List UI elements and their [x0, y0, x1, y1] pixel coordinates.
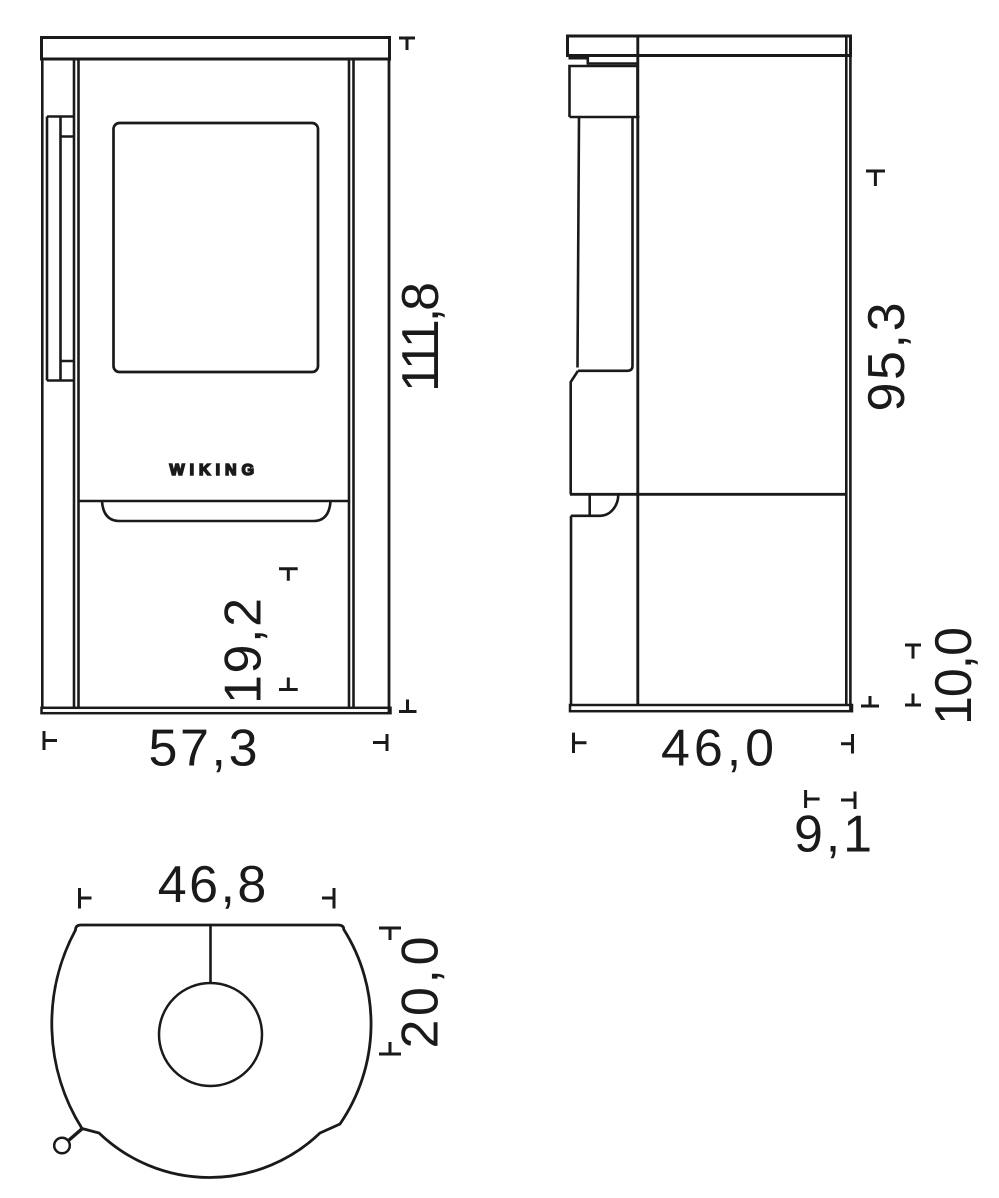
- svg-text:57,3: 57,3: [149, 720, 258, 778]
- svg-text:111,8: 111,8: [392, 282, 450, 392]
- svg-text:WIKING: WIKING: [170, 462, 260, 479]
- svg-text:95,3: 95,3: [858, 303, 916, 412]
- svg-text:46,0: 46,0: [661, 720, 774, 778]
- svg-text:10,0: 10,0: [925, 627, 983, 725]
- svg-text:46,8: 46,8: [158, 856, 267, 914]
- svg-text:19,2: 19,2: [215, 598, 273, 704]
- svg-text:9,1: 9,1: [794, 806, 872, 864]
- svg-text:20,0: 20,0: [392, 937, 450, 1049]
